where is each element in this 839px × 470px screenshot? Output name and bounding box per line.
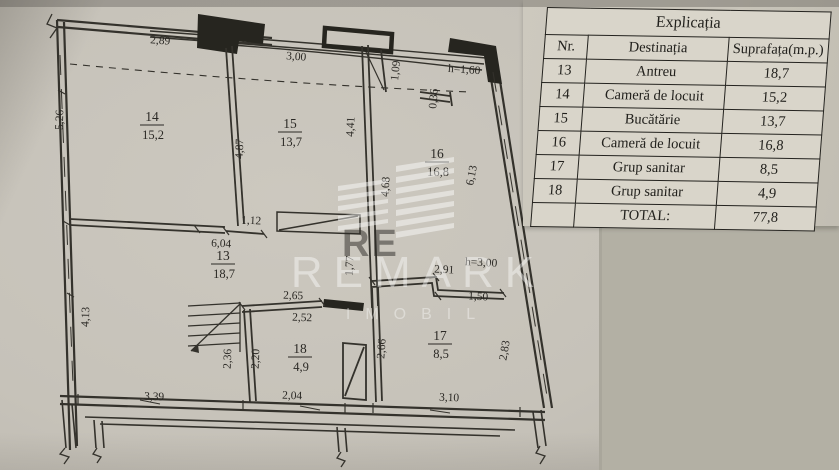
- dim-5-26: 5,26: [54, 109, 67, 130]
- dim-1-09: 1,09: [389, 60, 403, 82]
- cell-destination: Grup sanitar: [578, 155, 720, 181]
- dim-2-91: 2,91: [434, 263, 455, 276]
- floor-plan-photo: 14 15,2 15 13,7 16 16,8 13 18,7 17: [0, 0, 602, 470]
- dim-4-87: 4,87: [234, 138, 247, 159]
- cell-area: 13,7: [722, 109, 824, 135]
- room-18-area: 4,9: [293, 360, 309, 374]
- dim-6-13: 6,13: [464, 164, 480, 186]
- cell-area: 16,8: [720, 133, 822, 159]
- dim-2-20: 2,20: [250, 348, 263, 369]
- col-header-destination: Destinația: [587, 35, 729, 61]
- cell-nr: 14: [540, 82, 585, 107]
- cell-area: 18,7: [725, 61, 827, 87]
- exterior-walls: [57, 20, 552, 450]
- dim-1-77: 1,77: [343, 255, 356, 276]
- room-label-15: 15 13,7: [278, 116, 302, 149]
- lower-structure: [62, 400, 546, 452]
- dim-4-41: 4,41: [344, 116, 357, 137]
- cell-destination: Antreu: [585, 59, 727, 85]
- cell-destination: Grup sanitar: [576, 179, 718, 205]
- counter-hatch: [277, 212, 360, 234]
- dim-3-00: 3,00: [286, 50, 307, 63]
- legend-table: Explicația Nr. Destinația Suprafața(m.p.…: [530, 7, 832, 231]
- screenshot-canvas: 14 15,2 15 13,7 16 16,8 13 18,7 17: [0, 0, 839, 470]
- dim-2-83: 2,83: [497, 339, 512, 361]
- dim-2-66: 2,66: [375, 338, 388, 359]
- room-label-13: 13 18,7: [211, 248, 235, 281]
- room-17-number: 17: [433, 328, 447, 343]
- cell-nr: 17: [534, 154, 579, 179]
- ceiling-height-dashed-line: [70, 64, 470, 92]
- room-15-number: 15: [283, 116, 297, 131]
- dim-h-3-00: h=3,00: [465, 256, 498, 270]
- dim-3-10: 3,10: [439, 392, 460, 405]
- room-16-area: 16,8: [427, 165, 449, 179]
- total-empty-cell: [531, 202, 576, 227]
- cell-area: 15,2: [724, 85, 826, 111]
- dim-2-04: 2,04: [282, 390, 303, 403]
- room-label-14: 14 15,2: [140, 109, 164, 142]
- dim-4-68: 4,68: [379, 176, 392, 197]
- room-16-number: 16: [430, 146, 444, 161]
- col-header-nr: Nr.: [544, 35, 589, 60]
- vent-shaft: [343, 343, 366, 400]
- room-14-number: 14: [145, 109, 159, 124]
- col-header-area: Suprafața(m.p.): [727, 37, 829, 63]
- stairs: [188, 302, 240, 353]
- cell-nr: 15: [538, 106, 583, 131]
- dim-1-12: 1,12: [241, 214, 262, 227]
- room-label-16: 16 16,8: [425, 146, 449, 179]
- cell-destination: Cameră de locuit: [580, 131, 722, 157]
- room-label-18: 18 4,9: [288, 341, 312, 374]
- dim-1-50: 1,50: [468, 290, 489, 303]
- cell-nr: 16: [536, 130, 581, 155]
- room-17-area: 8,5: [433, 347, 449, 361]
- cell-nr: 18: [532, 178, 577, 203]
- cell-destination: Cameră de locuit: [583, 83, 725, 109]
- dim-6-04: 6,04: [211, 237, 232, 250]
- cell-nr: 13: [542, 59, 587, 84]
- dim-4-13: 4,13: [80, 306, 93, 327]
- dim-2-36: 2,36: [222, 348, 235, 369]
- dim-0-36: 0,36: [427, 88, 441, 109]
- legend-total-row: TOTAL: 77,8: [531, 202, 817, 230]
- total-value: 77,8: [714, 205, 816, 231]
- dim-2-89: 2,89: [150, 34, 171, 47]
- room-18-number: 18: [293, 341, 307, 356]
- dim-2-52: 2,52: [292, 312, 313, 325]
- room-label-17: 17 8,5: [428, 328, 452, 361]
- room-15-area: 13,7: [280, 135, 302, 149]
- cell-area: 8,5: [718, 157, 820, 183]
- total-label: TOTAL:: [574, 203, 716, 229]
- room-13-area: 18,7: [213, 267, 235, 281]
- dim-2-65: 2,65: [283, 290, 304, 303]
- cell-destination: Bucătărie: [581, 107, 723, 133]
- dim-h-1-60: h=1,60: [448, 63, 481, 77]
- legend-paper: Explicația Nr. Destinația Suprafața(m.p.…: [523, 0, 839, 226]
- dim-3-39: 3,39: [144, 391, 165, 404]
- floor-plan-drawing: 14 15,2 15 13,7 16 16,8 13 18,7 17: [0, 0, 599, 470]
- cell-area: 4,9: [716, 181, 818, 207]
- room-14-area: 15,2: [142, 128, 164, 142]
